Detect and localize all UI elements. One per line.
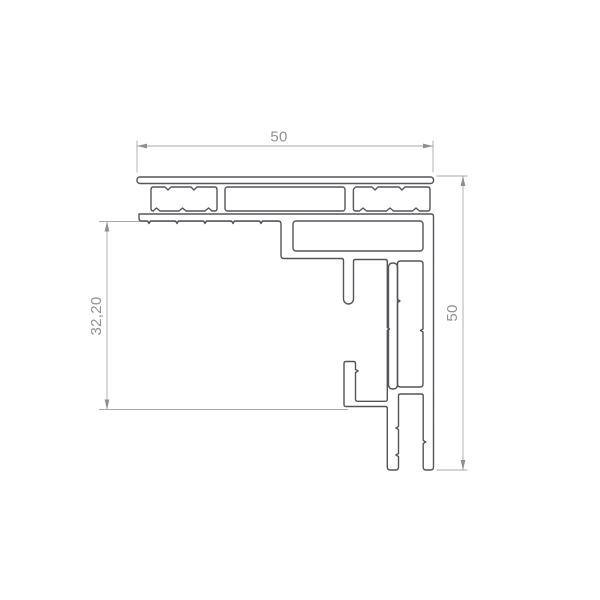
- arrowhead-bottom: [461, 460, 466, 470]
- arrowhead-top: [461, 176, 466, 186]
- profile-linework: [137, 177, 434, 470]
- dimension-label-left-inner-height: 32,20: [88, 296, 105, 335]
- dimension-label-top-width: 50: [270, 129, 287, 146]
- chamber-corner-large: [293, 221, 423, 251]
- chamber-top-middle: [225, 187, 345, 211]
- arrowhead-top: [105, 222, 110, 232]
- drawing-canvas: 50 50 32,20: [0, 0, 600, 600]
- profile-outer-contour: [139, 214, 434, 470]
- dimension-label-right-height: 50: [444, 304, 461, 321]
- arrowhead-right: [423, 144, 433, 149]
- top-flange: [137, 177, 434, 184]
- chamber-top-left: [151, 187, 217, 211]
- chamber-top-right: [353, 187, 430, 211]
- profile-drawing: 50 50 32,20: [0, 0, 600, 600]
- dimension-annotations: 50 50 32,20: [88, 129, 468, 471]
- dimension-top-width: 50: [137, 129, 433, 173]
- arrowhead-left: [137, 144, 147, 149]
- chamber-vertical-tall: [398, 261, 424, 387]
- screw-channel-slot: [389, 263, 398, 389]
- dimension-left-inner-height: 32,20: [88, 222, 348, 410]
- dimension-right-height: 50: [437, 176, 468, 470]
- arrowhead-bottom: [105, 400, 110, 410]
